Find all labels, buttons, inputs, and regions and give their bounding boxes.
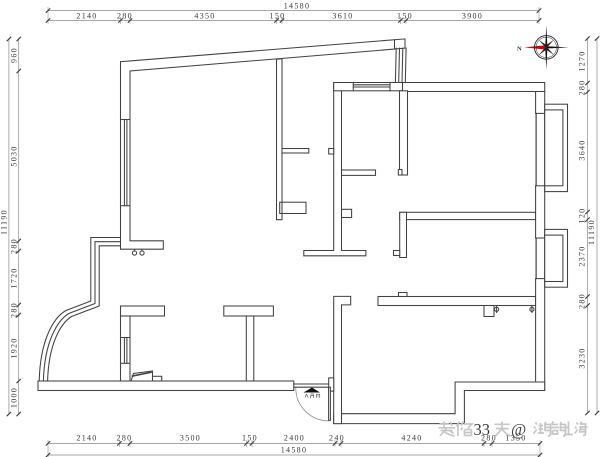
svg-text:240: 240: [329, 434, 345, 443]
svg-text:3230: 3230: [578, 347, 587, 368]
svg-text:2400: 2400: [284, 434, 305, 443]
svg-text:1920: 1920: [10, 337, 19, 358]
svg-text:3610: 3610: [332, 12, 353, 21]
svg-text:280: 280: [10, 238, 19, 254]
svg-text:280: 280: [578, 293, 587, 309]
svg-text:33: 33: [474, 420, 491, 439]
svg-text:3500: 3500: [180, 434, 201, 443]
svg-text:280: 280: [117, 434, 133, 443]
svg-text:@: @: [511, 420, 526, 439]
svg-text:280: 280: [578, 80, 587, 96]
svg-text:120: 120: [578, 208, 587, 224]
svg-text:3640: 3640: [578, 139, 587, 160]
svg-text:4240: 4240: [401, 434, 422, 443]
svg-text:5030: 5030: [10, 145, 19, 166]
svg-text:1000: 1000: [10, 387, 19, 408]
svg-text:150: 150: [242, 434, 258, 443]
svg-text:2140: 2140: [76, 12, 97, 21]
svg-text:N: N: [517, 45, 522, 52]
svg-text:2140: 2140: [76, 434, 97, 443]
svg-text:280: 280: [10, 302, 19, 318]
svg-text:11190: 11190: [0, 209, 9, 235]
svg-text:150: 150: [397, 12, 413, 21]
svg-text:960: 960: [10, 47, 19, 63]
svg-text:14580: 14580: [284, 2, 311, 11]
svg-text:150: 150: [270, 12, 286, 21]
svg-text:1270: 1270: [578, 50, 587, 71]
svg-text:1720: 1720: [10, 267, 19, 288]
svg-text:2370: 2370: [578, 245, 587, 266]
svg-text:4350: 4350: [194, 12, 215, 21]
svg-text:280: 280: [117, 12, 133, 21]
svg-text:3900: 3900: [462, 12, 483, 21]
svg-text:11190: 11190: [587, 219, 596, 245]
svg-text:14580: 14580: [281, 446, 308, 455]
